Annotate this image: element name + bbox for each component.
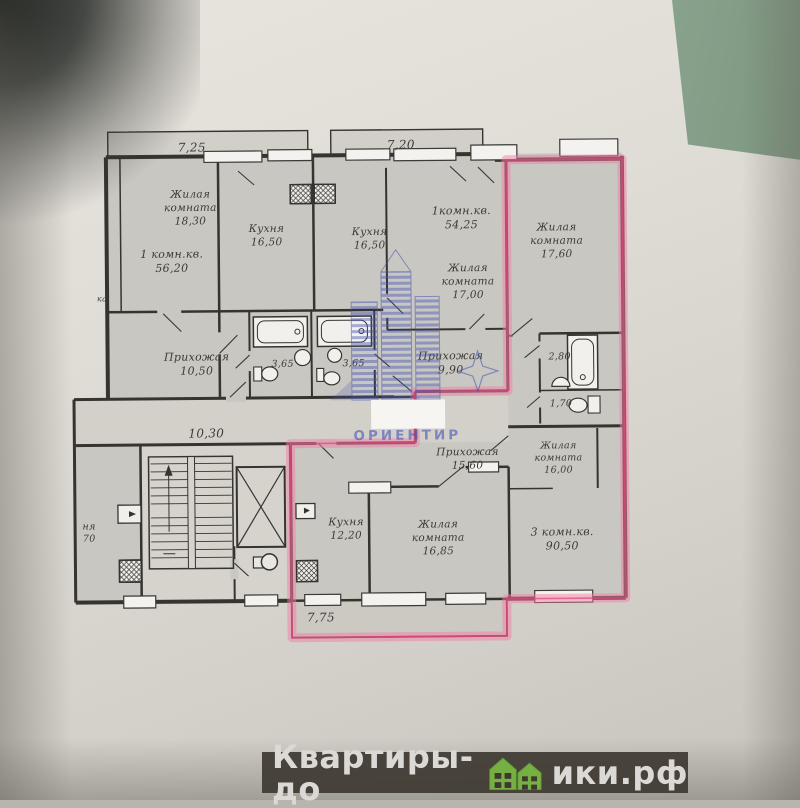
bathtub-drain <box>295 329 300 334</box>
photo-shadow-left <box>0 0 72 800</box>
toilet-tank <box>254 367 262 381</box>
bathtub-drain <box>580 375 585 380</box>
houses-icon <box>488 754 551 792</box>
site-watermark-prefix: Квартиры-до <box>272 741 486 805</box>
sink-icon <box>328 348 342 362</box>
partial-label-ka: ка <box>97 294 107 303</box>
toilet-icon <box>324 372 340 385</box>
kitchen-16-50-left: Кухня16,50 <box>248 223 285 249</box>
site-watermark-suffix: ики.рф <box>552 757 688 789</box>
toilet-tank <box>317 368 324 381</box>
bath-2-80: 2,80 <box>547 351 570 362</box>
photo-shadow-right <box>742 0 800 800</box>
dim-7-20: 7,20 <box>387 138 415 152</box>
sink-icon <box>295 350 311 366</box>
dim-10-30: 10,30 <box>188 426 224 440</box>
kitchen-16-50-mid: Кухня16,50 <box>351 226 388 252</box>
watermark-white-patch <box>371 399 445 429</box>
kitchen-12-20: Кухня12,20 <box>327 516 364 542</box>
partial-label-left: ня70 <box>82 521 95 544</box>
wc-1-70: 1,70 <box>550 398 572 409</box>
toilet-tank <box>588 396 600 413</box>
dim-7-75: 7,75 <box>307 610 335 624</box>
bath-3-65-left: 3,65 <box>271 359 293 370</box>
watermark-brand-text: ОРИЕНТИР <box>353 427 461 444</box>
site-watermark-bar: Квартиры-до ики.рф <box>262 752 688 793</box>
